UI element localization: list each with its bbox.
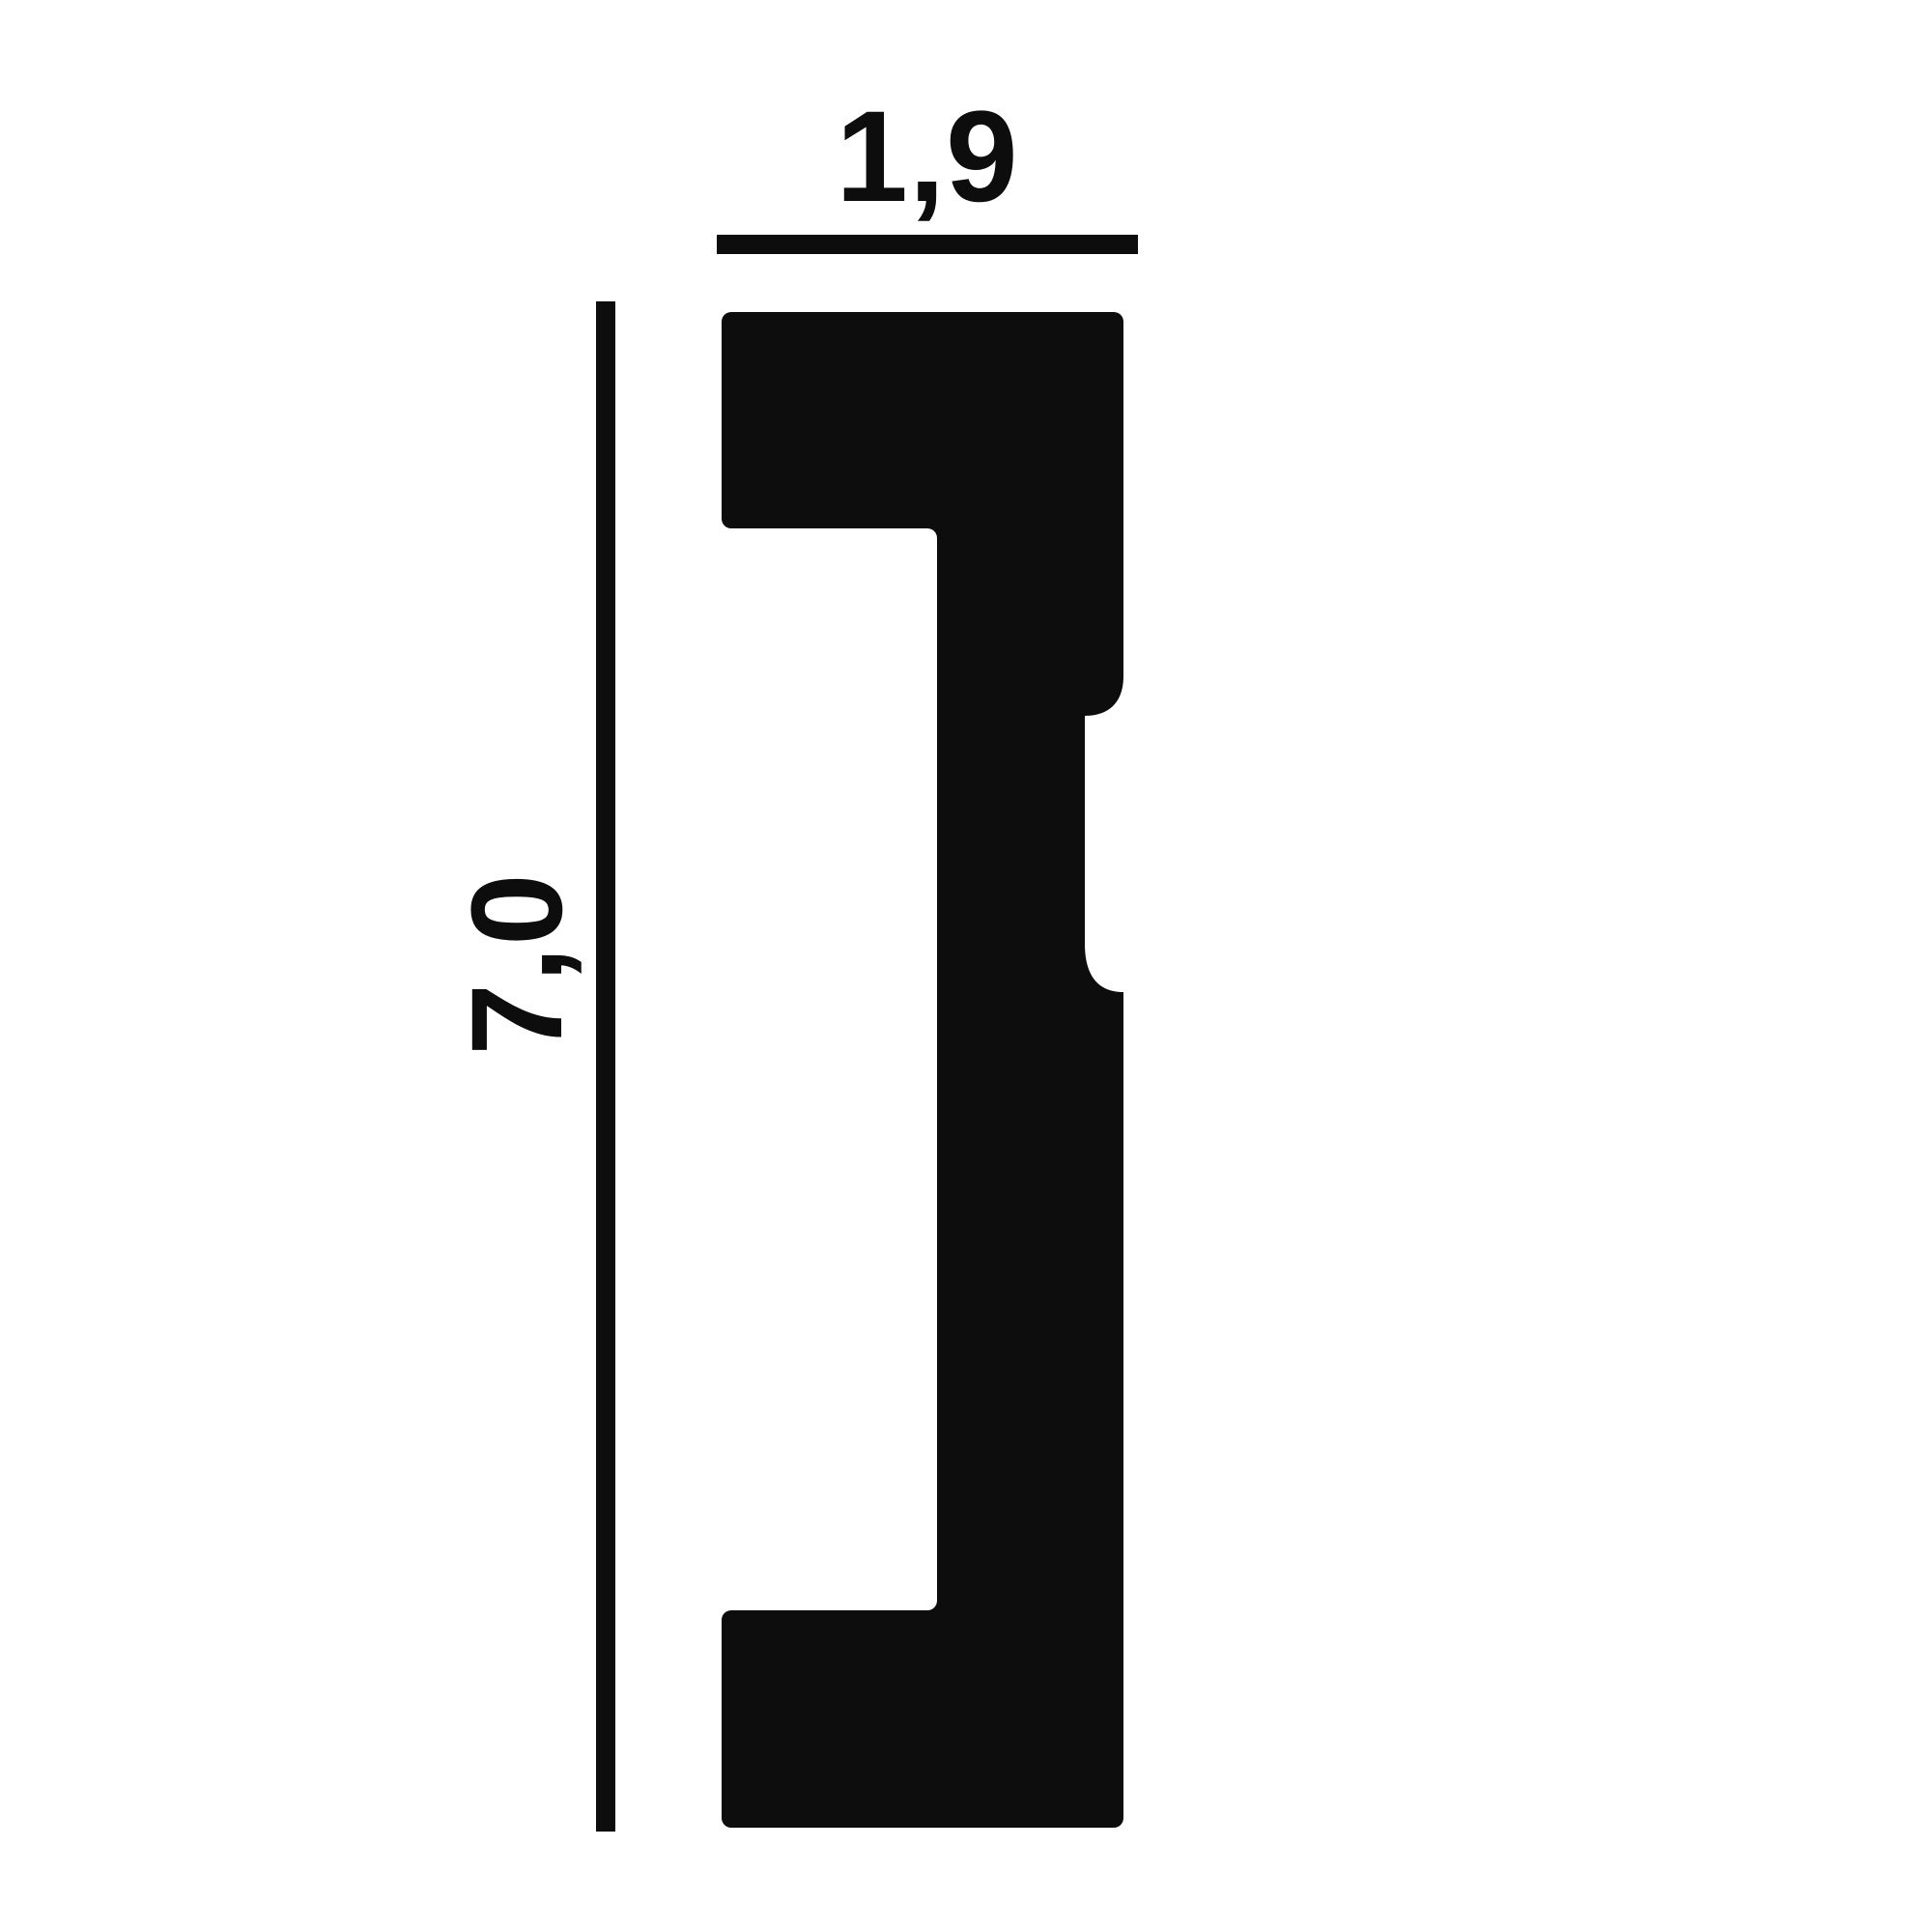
width-dimension-line: [717, 235, 1138, 254]
height-dimension-line: [596, 301, 615, 1832]
height-dimension-label: 7,0: [453, 872, 582, 1055]
diagram-stage: 1,9 7,0: [0, 0, 1932, 1932]
profile-drawing: [0, 0, 1932, 1932]
profile-shape: [722, 312, 1123, 1828]
width-dimension-label: 1,9: [836, 93, 1018, 222]
